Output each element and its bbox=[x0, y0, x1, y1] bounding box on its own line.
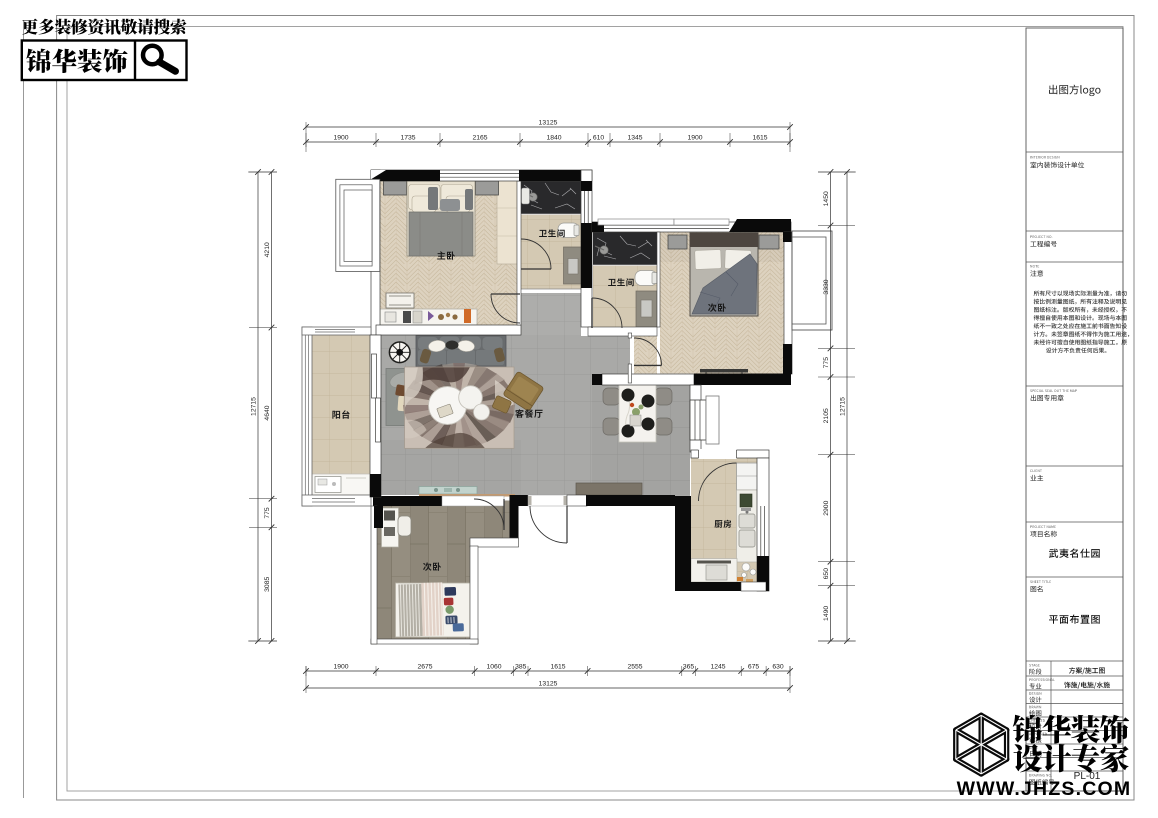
svg-text:775: 775 bbox=[264, 507, 271, 519]
svg-text:2165: 2165 bbox=[472, 135, 487, 142]
svg-text:WWW.JHZS.COM: WWW.JHZS.COM bbox=[957, 778, 1132, 800]
svg-text:2900: 2900 bbox=[823, 500, 830, 515]
svg-text:2555: 2555 bbox=[627, 664, 642, 671]
svg-text:1615: 1615 bbox=[550, 664, 565, 671]
svg-text:365: 365 bbox=[683, 664, 695, 671]
svg-text:1615: 1615 bbox=[752, 135, 767, 142]
svg-text:675: 675 bbox=[748, 664, 760, 671]
svg-text:3330: 3330 bbox=[823, 279, 830, 294]
svg-text:1450: 1450 bbox=[823, 191, 830, 206]
svg-text:1900: 1900 bbox=[333, 135, 348, 142]
svg-text:13125: 13125 bbox=[539, 120, 558, 127]
svg-text:4640: 4640 bbox=[264, 405, 271, 420]
svg-text:610: 610 bbox=[593, 135, 605, 142]
svg-text:12715: 12715 bbox=[251, 397, 258, 416]
svg-text:1900: 1900 bbox=[687, 135, 702, 142]
svg-text:1245: 1245 bbox=[710, 664, 725, 671]
svg-text:1490: 1490 bbox=[823, 606, 830, 621]
svg-text:2105: 2105 bbox=[823, 408, 830, 423]
svg-text:1735: 1735 bbox=[400, 135, 415, 142]
svg-text:775: 775 bbox=[823, 357, 830, 369]
svg-text:385: 385 bbox=[515, 664, 527, 671]
svg-text:650: 650 bbox=[823, 568, 830, 580]
svg-text:1060: 1060 bbox=[486, 664, 501, 671]
svg-text:1840: 1840 bbox=[546, 135, 561, 142]
svg-text:3085: 3085 bbox=[264, 577, 271, 592]
svg-text:4210: 4210 bbox=[264, 242, 271, 257]
svg-text:12715: 12715 bbox=[840, 397, 847, 416]
svg-text:630: 630 bbox=[772, 664, 784, 671]
svg-text:1345: 1345 bbox=[627, 135, 642, 142]
svg-text:1900: 1900 bbox=[333, 664, 348, 671]
svg-text:13125: 13125 bbox=[539, 681, 558, 688]
svg-text:2675: 2675 bbox=[417, 664, 432, 671]
